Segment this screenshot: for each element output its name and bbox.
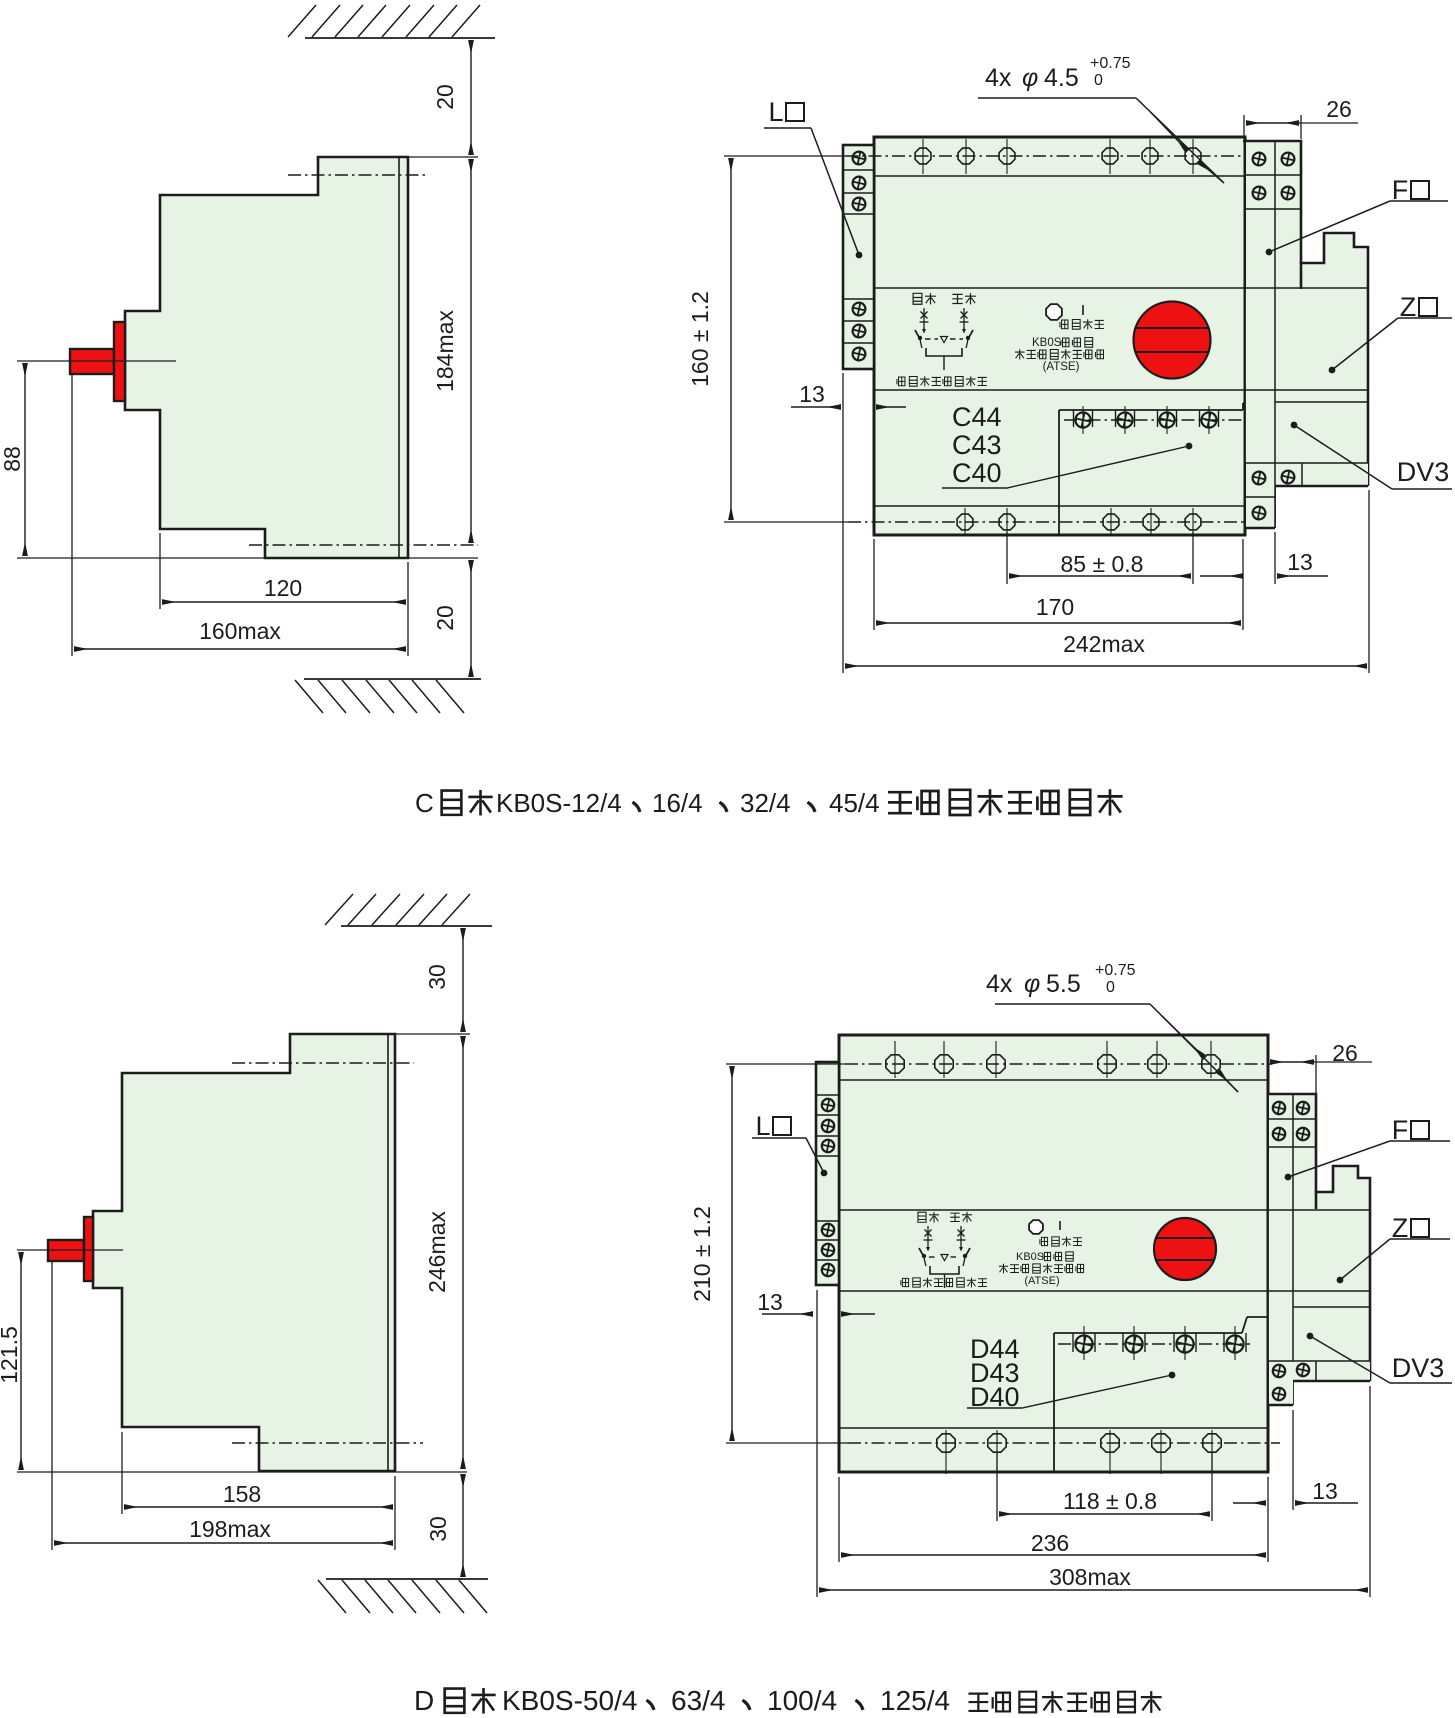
svg-text:26: 26: [1332, 1040, 1358, 1066]
svg-text:184max: 184max: [432, 310, 458, 392]
svg-text:13: 13: [1312, 1478, 1338, 1504]
svg-text:308max: 308max: [1049, 1564, 1131, 1590]
svg-text:236: 236: [1031, 1530, 1069, 1556]
svg-text:26: 26: [1326, 96, 1352, 122]
svg-text:13: 13: [757, 1289, 783, 1315]
svg-text:160 ± 1.2: 160 ± 1.2: [687, 291, 713, 387]
svg-text:5.5: 5.5: [1046, 970, 1081, 998]
svg-text:KB0S: KB0S: [1032, 337, 1062, 349]
svg-text:φ: φ: [1024, 970, 1040, 998]
svg-text:45/4: 45/4: [829, 788, 880, 818]
svg-text:4x: 4x: [986, 970, 1013, 998]
svg-text:L: L: [768, 97, 783, 127]
svg-text:φ: φ: [1022, 64, 1038, 92]
svg-text:L: L: [755, 1111, 770, 1141]
svg-text:D: D: [414, 1685, 434, 1716]
svg-text:125/4: 125/4: [880, 1685, 950, 1716]
svg-text:(ATSE): (ATSE): [1024, 1275, 1059, 1287]
svg-text:30: 30: [425, 1516, 451, 1542]
svg-text:120: 120: [264, 575, 302, 601]
svg-text:160max: 160max: [199, 618, 281, 644]
svg-text:85 ± 0.8: 85 ± 0.8: [1061, 551, 1144, 577]
svg-text:C43: C43: [952, 430, 1002, 460]
svg-text:121.5: 121.5: [0, 1326, 22, 1384]
svg-text:4x: 4x: [985, 64, 1012, 92]
svg-text:KB0S-12/4: KB0S-12/4: [496, 788, 622, 818]
svg-text:KB0S-50/4: KB0S-50/4: [502, 1685, 637, 1716]
svg-text:C40: C40: [952, 458, 1002, 488]
svg-text:246max: 246max: [424, 1211, 450, 1293]
svg-text:198max: 198max: [189, 1516, 271, 1542]
svg-text:KB0S: KB0S: [1016, 1251, 1044, 1263]
svg-text:170: 170: [1036, 594, 1074, 620]
svg-text:88: 88: [0, 446, 25, 472]
svg-text:20: 20: [432, 84, 458, 110]
svg-text:242max: 242max: [1063, 631, 1145, 657]
svg-text:0: 0: [1094, 72, 1103, 89]
svg-text:32/4: 32/4: [740, 788, 791, 818]
svg-text:63/4: 63/4: [671, 1685, 726, 1716]
svg-text:210 ± 1.2: 210 ± 1.2: [689, 1206, 715, 1302]
svg-text:30: 30: [424, 964, 450, 990]
svg-text:C44: C44: [952, 402, 1002, 432]
svg-text:13: 13: [1287, 549, 1313, 575]
svg-text:DV3: DV3: [1397, 457, 1450, 487]
svg-text:+0.75: +0.75: [1095, 962, 1136, 979]
svg-text:118 ± 0.8: 118 ± 0.8: [1063, 1488, 1157, 1514]
svg-text:20: 20: [432, 605, 458, 631]
svg-text:100/4: 100/4: [767, 1685, 837, 1716]
svg-text:0: 0: [1106, 979, 1115, 996]
svg-text:+0.75: +0.75: [1090, 55, 1131, 72]
svg-text:158: 158: [223, 1481, 261, 1507]
svg-text:16/4: 16/4: [652, 788, 703, 818]
svg-text:(ATSE): (ATSE): [1043, 361, 1080, 373]
svg-text:DV3: DV3: [1392, 1353, 1445, 1383]
svg-text:13: 13: [799, 381, 825, 407]
svg-text:4.5: 4.5: [1044, 64, 1079, 92]
svg-text:C: C: [415, 788, 434, 818]
